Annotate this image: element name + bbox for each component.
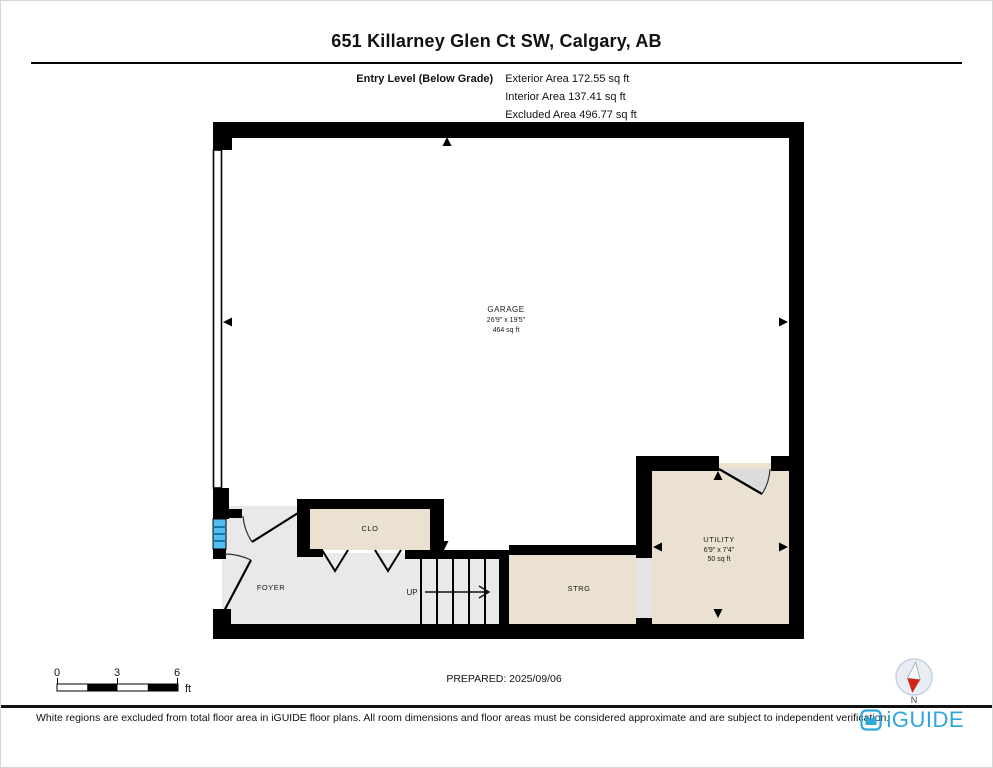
wall-segment: [509, 545, 637, 555]
iguide-logo-text: iGUIDE: [886, 707, 964, 733]
foyer-floor: [222, 506, 298, 624]
wall-segment: [213, 624, 804, 639]
utility-area: 50 sq ft: [708, 556, 731, 563]
wall-segment: [213, 122, 804, 138]
wall-segment: [499, 550, 509, 624]
utility-dims: 6'9" x 7'4": [704, 547, 735, 554]
garage-area: 464 sq ft: [493, 327, 520, 334]
floor-plan-drawing: GARAGE 26'9" x 19'5" 464 sq ft CLO FOYER…: [1, 1, 993, 768]
scale-bar: 0 3 6 ft: [54, 667, 191, 695]
wall-segment: [213, 609, 231, 631]
wall-segment: [297, 499, 444, 509]
wall-segment: [636, 618, 652, 624]
garage-label: GARAGE: [487, 305, 524, 314]
floor-plan-page: 651 Killarney Glen Ct SW, Calgary, AB En…: [0, 0, 993, 768]
stairs-up-label: UP: [406, 588, 417, 597]
wall-segment: [213, 488, 229, 519]
wall-segment: [771, 456, 804, 471]
utility-label: UTILITY: [703, 535, 734, 544]
wall-segment: [229, 509, 242, 518]
iguide-logo: iGUIDE: [860, 707, 964, 733]
wall-segment: [636, 456, 652, 558]
wall-segment: [636, 456, 719, 471]
prepared-date: PREPARED: 2025/09/06: [446, 673, 562, 685]
arrow-up-icon: [443, 137, 452, 146]
garage-dims: 26'9" x 19'5": [487, 317, 526, 324]
wall-segment: [789, 122, 804, 639]
scale-tick-3: 3: [114, 667, 120, 679]
arrow-left-icon: [223, 318, 232, 327]
scale-unit: ft: [185, 683, 191, 695]
garage-door-wall: [214, 150, 222, 488]
disclaimer-text: White regions are excluded from total fl…: [36, 712, 889, 724]
storage-utility-opening: [636, 558, 652, 618]
wall-segment: [405, 550, 509, 559]
scale-tick-6: 6: [174, 667, 180, 679]
wall-segment: [430, 499, 444, 557]
compass-north-icon: N: [896, 659, 932, 705]
iguide-logo-icon: [860, 709, 882, 731]
wall-segment: [297, 549, 323, 557]
north-label: N: [911, 695, 918, 705]
closet-label: CLO: [362, 524, 379, 533]
window: [213, 519, 226, 549]
arrow-right-icon: [779, 318, 788, 327]
footer-divider: [1, 705, 992, 708]
foyer-label: FOYER: [257, 583, 285, 592]
wall-segment: [213, 549, 226, 559]
storage-label: STRG: [568, 584, 591, 593]
wall-segment: [297, 499, 310, 557]
wall-segment: [213, 122, 232, 150]
hallway-floor: [297, 553, 407, 624]
scale-tick-0: 0: [54, 667, 60, 679]
